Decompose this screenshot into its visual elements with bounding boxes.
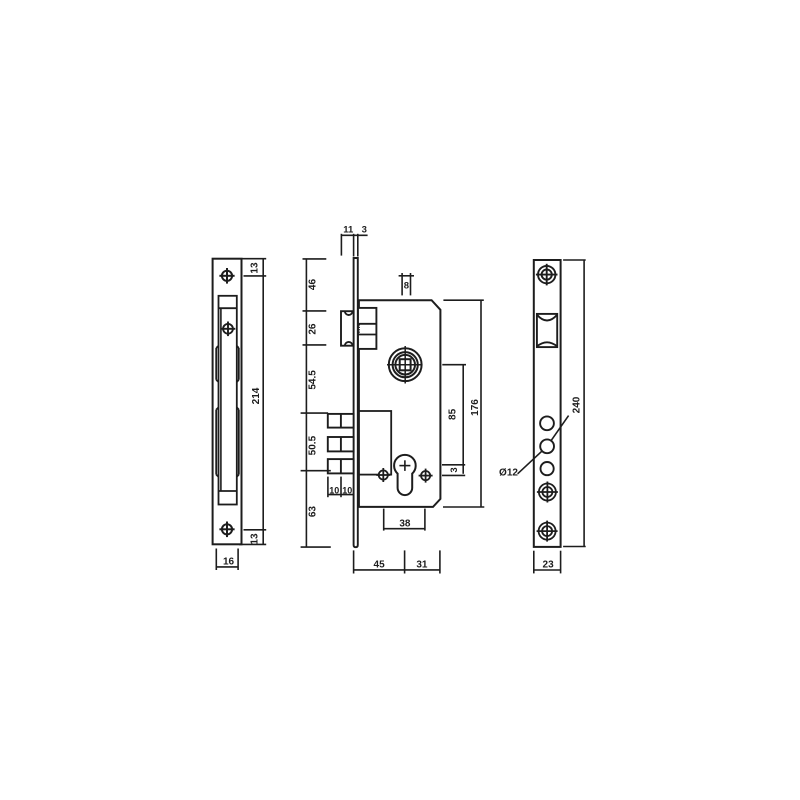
svg-text:38: 38 xyxy=(399,518,411,529)
svg-text:16: 16 xyxy=(223,557,235,568)
svg-text:11: 11 xyxy=(343,225,354,236)
svg-text:176: 176 xyxy=(470,399,481,416)
svg-text:240: 240 xyxy=(572,396,583,413)
svg-text:45: 45 xyxy=(374,560,386,571)
svg-text:23: 23 xyxy=(543,559,555,570)
svg-text:Ø12: Ø12 xyxy=(499,468,518,479)
svg-text:8: 8 xyxy=(404,281,409,292)
svg-text:63: 63 xyxy=(308,506,319,518)
svg-text:10: 10 xyxy=(329,486,339,496)
svg-text:13: 13 xyxy=(250,533,261,545)
svg-text:3: 3 xyxy=(449,467,460,472)
svg-text:10: 10 xyxy=(342,486,352,496)
svg-text:214: 214 xyxy=(251,387,262,404)
svg-text:50.5: 50.5 xyxy=(307,435,318,455)
svg-text:26: 26 xyxy=(307,323,318,335)
svg-text:85: 85 xyxy=(447,408,458,420)
svg-text:31: 31 xyxy=(416,560,428,571)
svg-text:3: 3 xyxy=(362,225,367,236)
svg-text:46: 46 xyxy=(308,279,319,291)
svg-text:13: 13 xyxy=(250,262,261,274)
svg-text:54.5: 54.5 xyxy=(307,370,318,390)
